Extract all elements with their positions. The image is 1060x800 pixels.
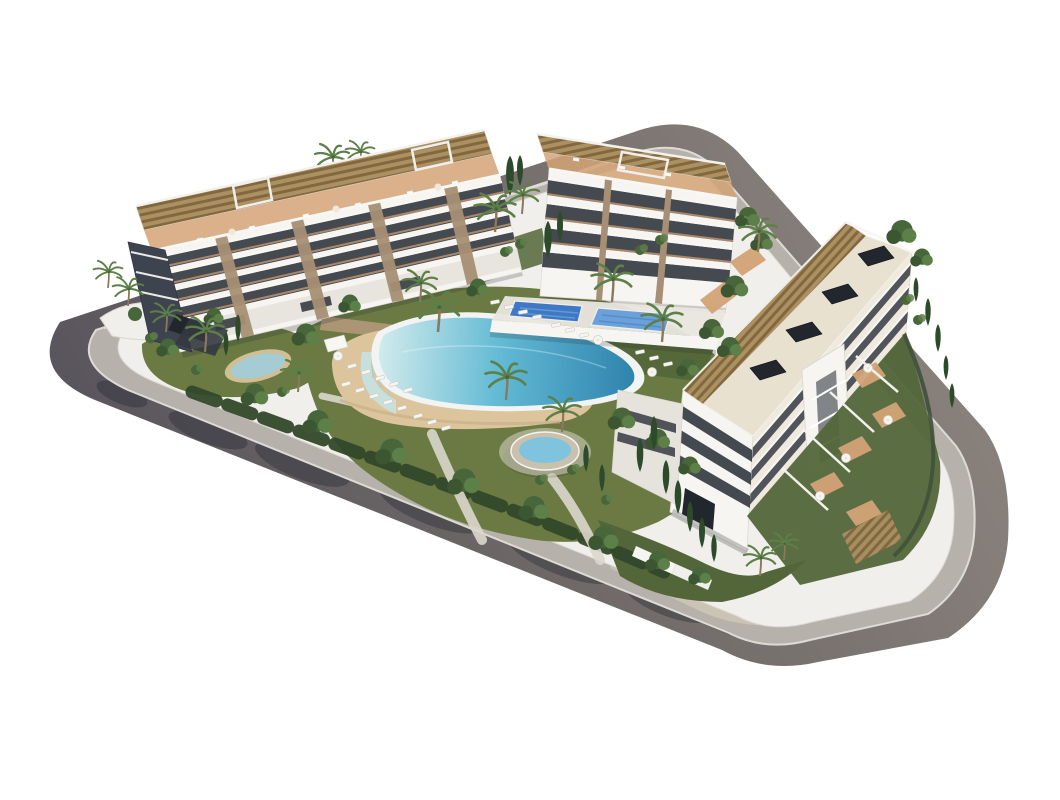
parasol	[883, 415, 892, 424]
roof-parasol	[229, 229, 236, 236]
parasol	[863, 363, 872, 372]
roof-parasol	[333, 206, 340, 213]
cypress-tree	[925, 298, 930, 326]
planter-bush	[128, 307, 142, 321]
tree	[886, 220, 916, 244]
tree	[910, 249, 933, 267]
parasol	[815, 491, 824, 500]
parasol	[593, 335, 602, 344]
architectural-render-page	[0, 0, 1060, 800]
parasol	[333, 351, 342, 360]
palm-tree	[94, 261, 123, 288]
residential-complex-aerial-render	[0, 0, 1060, 800]
roof-parasol	[435, 184, 442, 191]
parasol	[841, 453, 850, 462]
bush	[913, 314, 926, 325]
apartment-building-top	[537, 134, 737, 310]
parasol	[647, 367, 656, 376]
cypress-tree	[914, 277, 919, 302]
cypress-tree	[944, 355, 949, 380]
spa-water	[519, 437, 571, 463]
cypress-tree	[935, 324, 940, 352]
